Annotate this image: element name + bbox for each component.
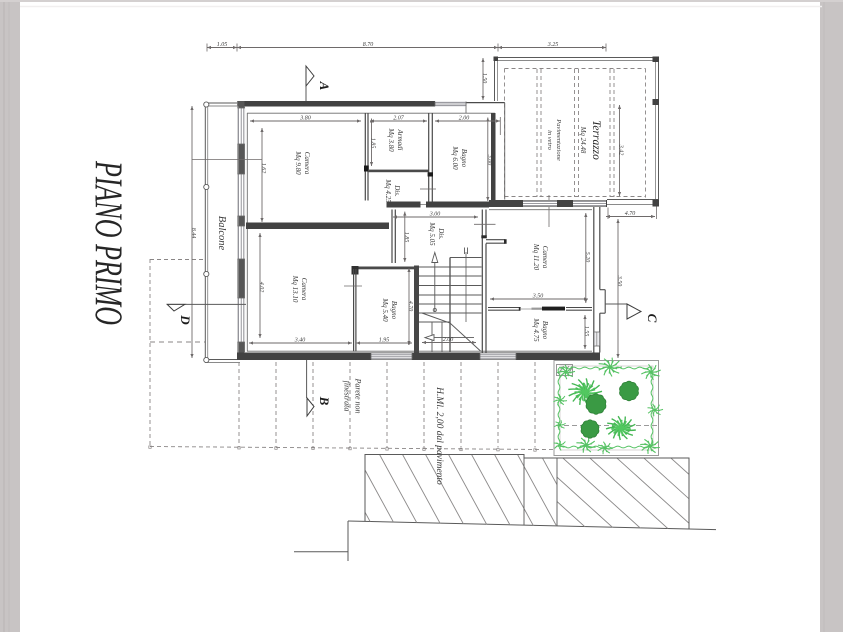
svg-text:1.05: 1.05	[217, 42, 228, 48]
svg-text:Bagno: Bagno	[541, 321, 549, 340]
svg-text:A: A	[317, 81, 332, 91]
svg-text:3.80: 3.80	[299, 116, 311, 122]
svg-text:4.70: 4.70	[625, 210, 636, 217]
svg-text:4.02: 4.02	[258, 282, 265, 293]
svg-text:Mq 13.10: Mq 13.10	[291, 275, 299, 303]
svg-text:Mq 3.80: Mq 3.80	[387, 127, 395, 152]
svg-text:3.00: 3.00	[429, 212, 441, 218]
svg-text:Mq 4.25: Mq 4.25	[384, 178, 392, 203]
svg-text:Mq 5.40: Mq 5.40	[381, 297, 389, 322]
svg-text:finestrata: finestrata	[343, 381, 352, 412]
svg-text:8.44: 8.44	[190, 228, 197, 239]
svg-text:Terrazzo: Terrazzo	[590, 120, 602, 160]
svg-text:Mq 4.75: Mq 4.75	[532, 317, 540, 342]
svg-text:5.20: 5.20	[584, 252, 590, 263]
svg-text:3.50: 3.50	[532, 294, 544, 300]
svg-text:Camera: Camera	[541, 246, 549, 269]
svg-text:D: D	[178, 314, 193, 325]
svg-text:4.70: 4.70	[407, 301, 414, 312]
svg-text:Balcone: Balcone	[216, 216, 227, 251]
svg-text:2.00: 2.00	[443, 337, 454, 343]
svg-text:Parete non: Parete non	[354, 377, 363, 413]
svg-text:Camera: Camera	[300, 278, 308, 301]
svg-text:3.40: 3.40	[294, 337, 306, 344]
svg-text:Bagno: Bagno	[460, 149, 468, 168]
svg-text:Pavimentazione: Pavimentazione	[555, 118, 562, 161]
svg-text:Dis.: Dis.	[437, 227, 445, 240]
svg-text:Dis.: Dis.	[393, 184, 401, 197]
svg-text:Mq 9.80: Mq 9.80	[294, 150, 302, 175]
svg-text:1.55: 1.55	[583, 326, 589, 337]
svg-text:3.42: 3.42	[618, 144, 625, 156]
svg-text:Armadi: Armadi	[396, 129, 404, 151]
svg-text:B: B	[317, 396, 332, 406]
svg-text:3.50: 3.50	[616, 275, 622, 287]
svg-text:Mq 6.00: Mq 6.00	[451, 145, 459, 170]
svg-text:Bagno: Bagno	[390, 301, 398, 320]
svg-text:1.95: 1.95	[379, 338, 390, 344]
svg-text:3.00: 3.00	[486, 154, 492, 166]
svg-text:Camera: Camera	[303, 152, 311, 175]
svg-text:1.50: 1.50	[481, 73, 487, 84]
svg-text:C: C	[645, 314, 660, 323]
svg-text:2.07: 2.07	[393, 116, 405, 122]
svg-text:8.70: 8.70	[363, 42, 374, 48]
svg-text:in vetro: in vetro	[546, 130, 553, 151]
svg-text:1.85: 1.85	[403, 232, 409, 243]
svg-text:Mq 24.48: Mq 24.48	[579, 126, 587, 154]
svg-text:1.85: 1.85	[370, 138, 376, 149]
svg-text:H.Ml. 2,00 dal pavimento: H.Ml. 2,00 dal pavimento	[434, 386, 444, 485]
svg-text:1.62: 1.62	[260, 163, 266, 174]
svg-text:Mq 11.20: Mq 11.20	[532, 243, 540, 271]
svg-text:Mq 5.05: Mq 5.05	[428, 221, 436, 246]
svg-text:2.00: 2.00	[459, 116, 470, 122]
svg-text:3.25: 3.25	[547, 42, 559, 48]
svg-text:PIANO PRIMO: PIANO PRIMO	[87, 160, 130, 325]
